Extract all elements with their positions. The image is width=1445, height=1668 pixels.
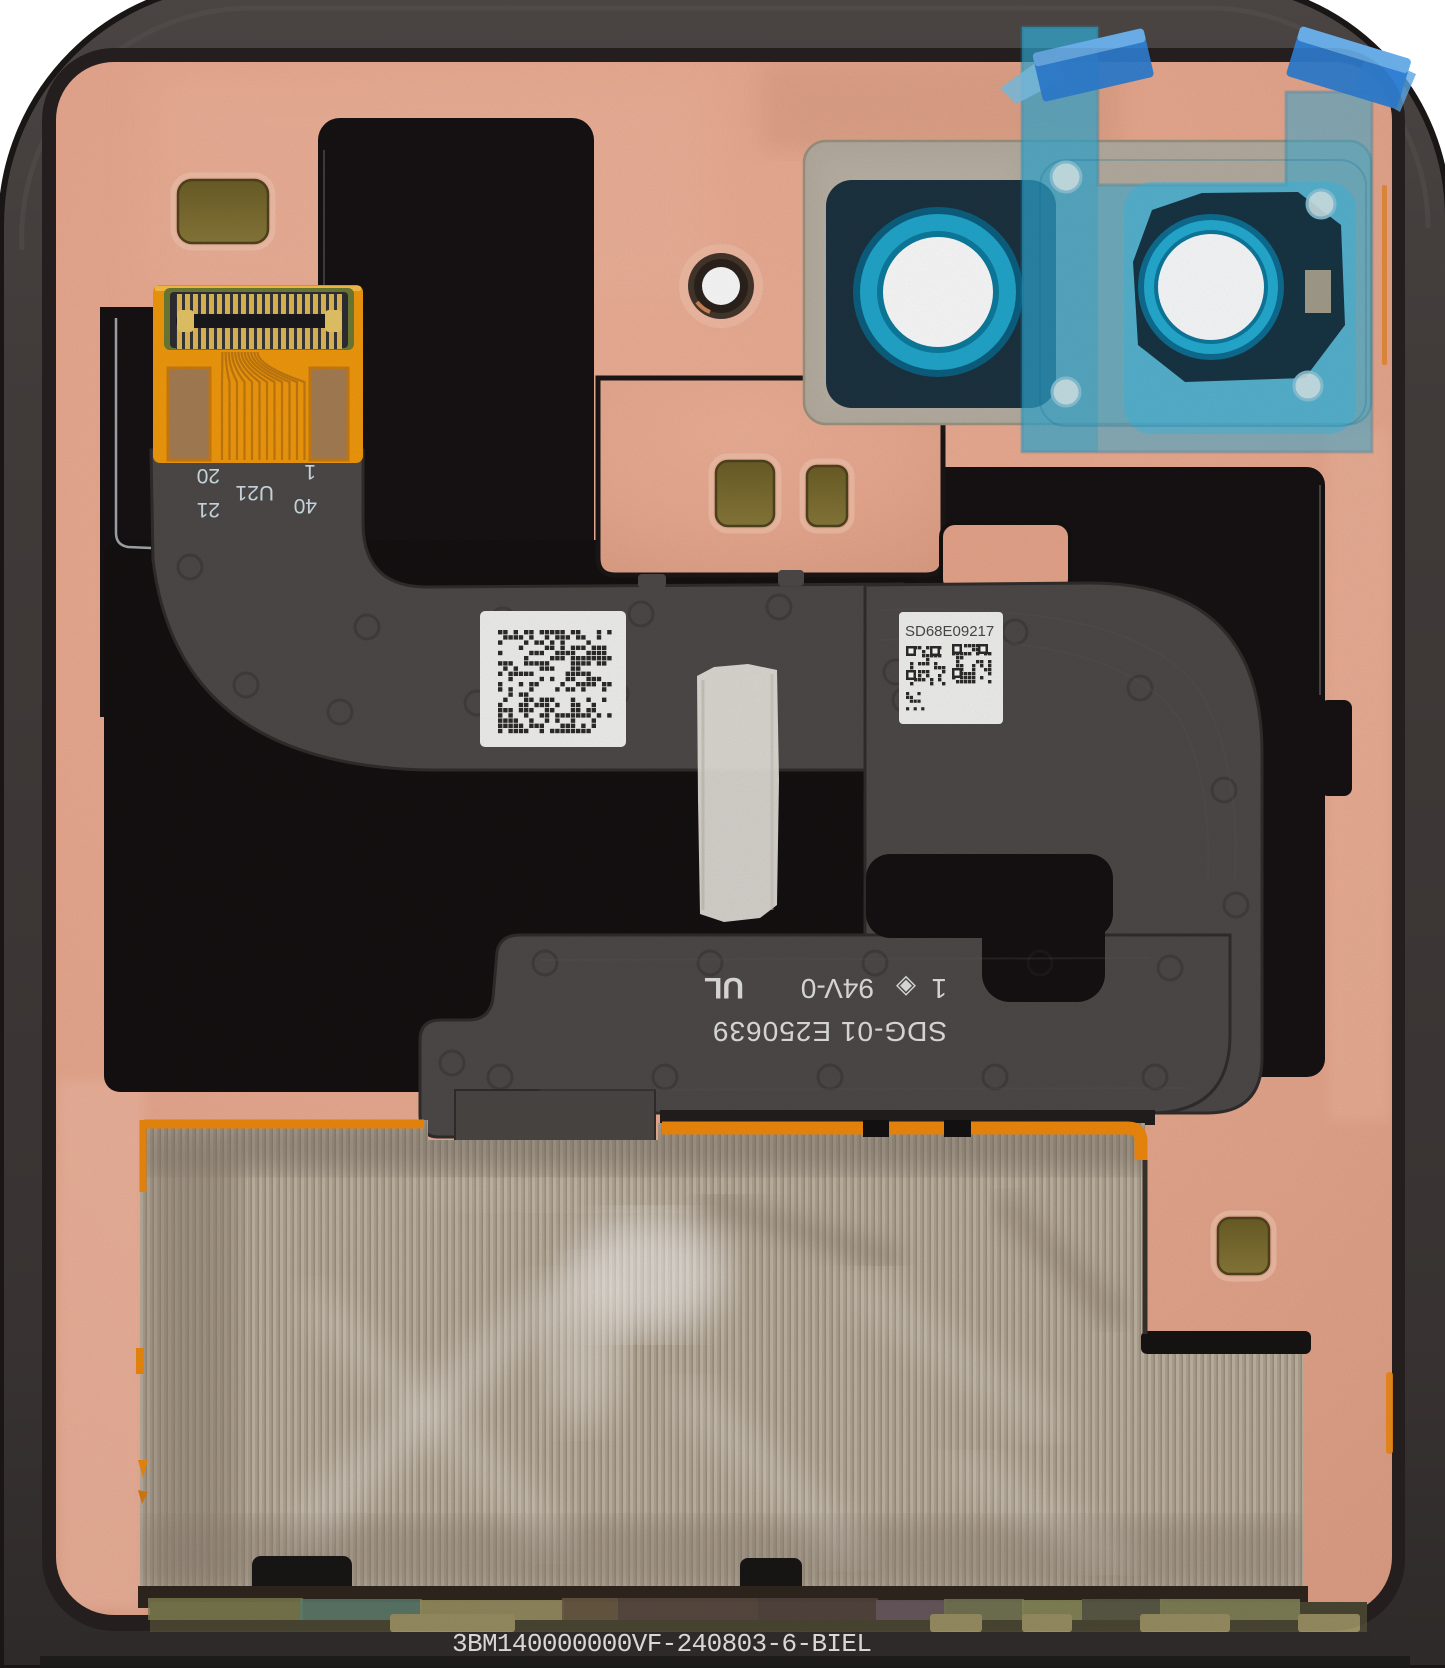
svg-text:3BM140000000VF-240803-6-BIEL: 3BM140000000VF-240803-6-BIEL bbox=[452, 1629, 872, 1659]
